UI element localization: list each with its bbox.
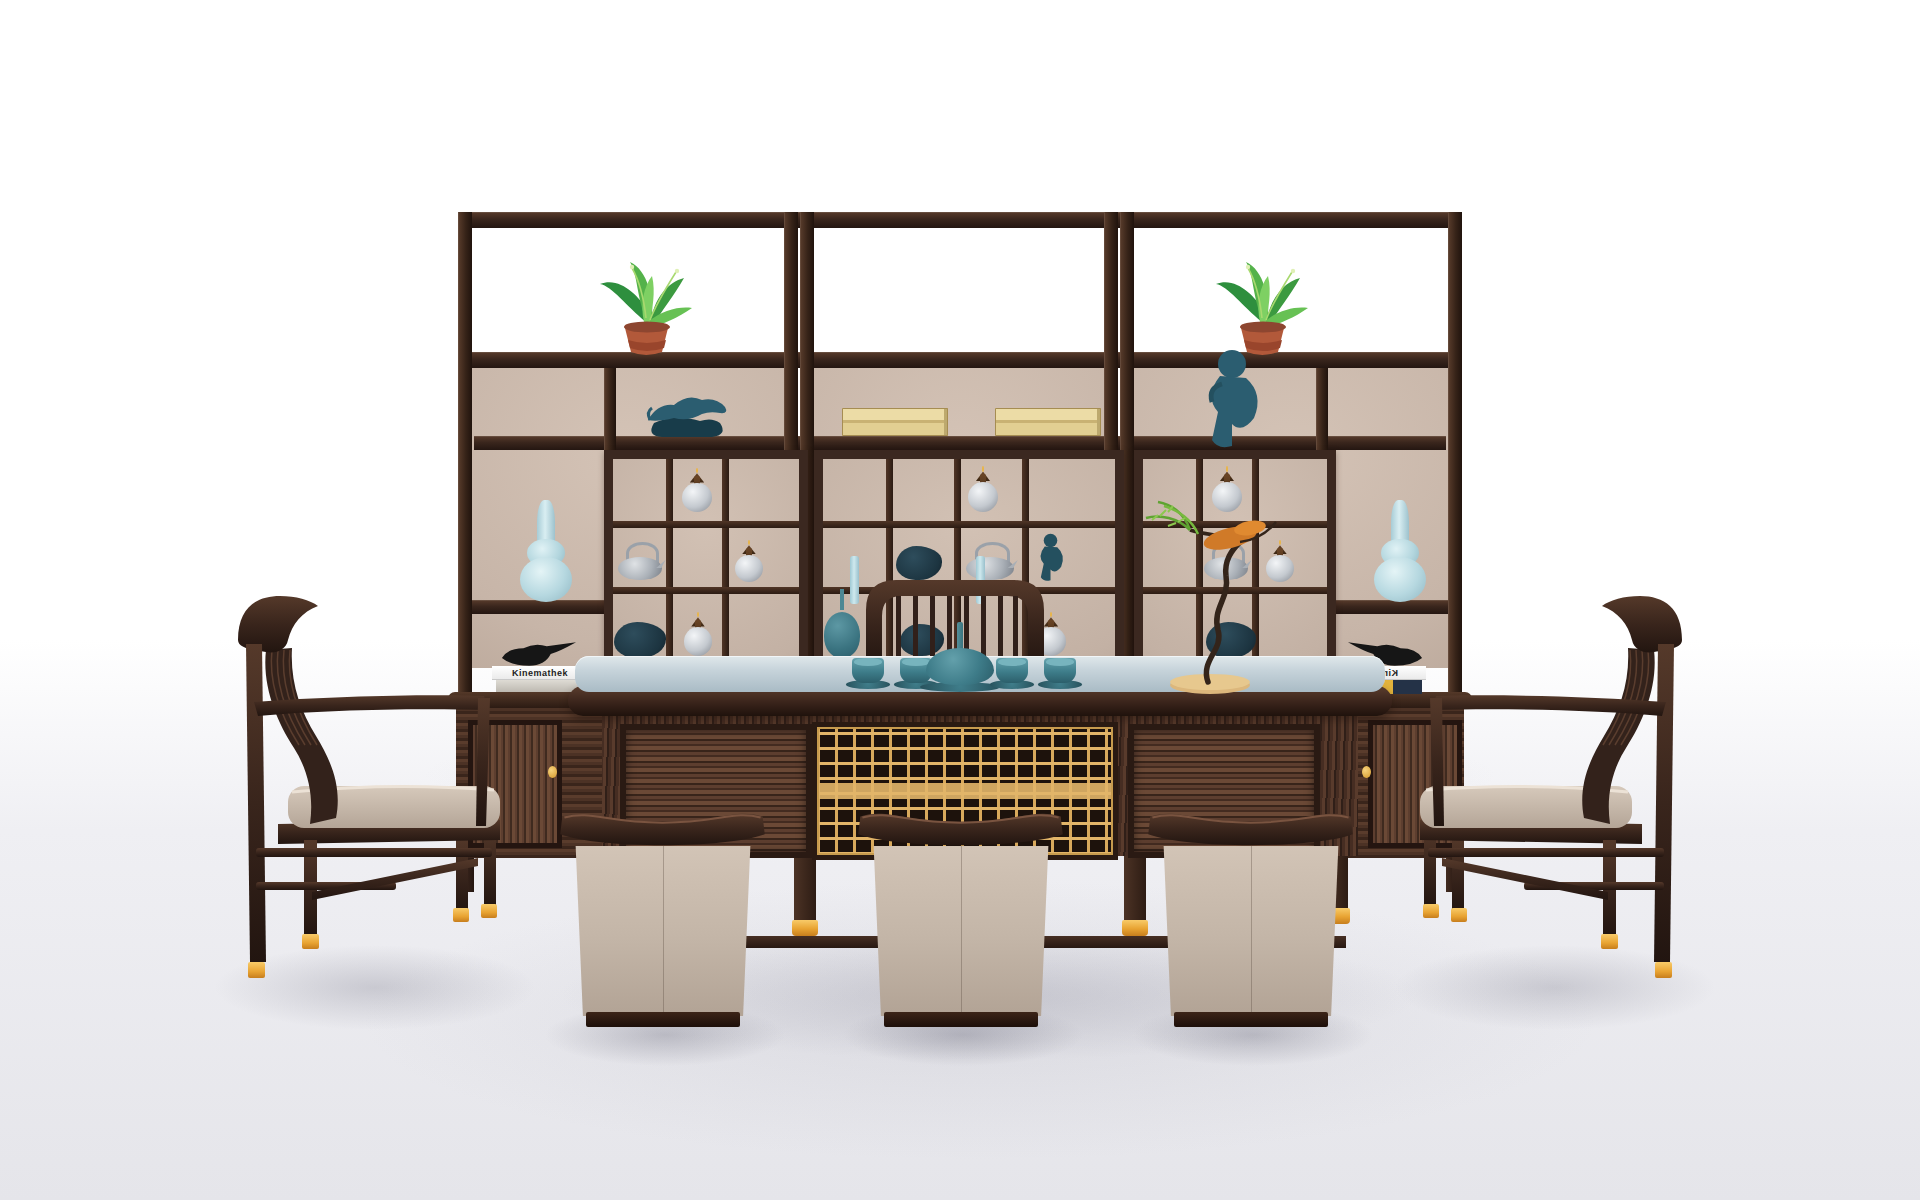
stool-top	[853, 806, 1068, 854]
table-leg	[794, 850, 816, 924]
silver-jar	[735, 542, 763, 582]
shelf-rail	[474, 436, 1446, 450]
gold-foot-cap	[1122, 920, 1148, 936]
stool-body	[870, 846, 1052, 1016]
silver-jar	[682, 470, 712, 512]
teacup	[852, 658, 884, 683]
stool-body	[572, 846, 754, 1016]
potted-plant-icon	[1208, 248, 1316, 356]
armchair-right	[1416, 590, 1688, 992]
shelf-top-rail	[458, 212, 1462, 228]
bird-figurine-icon	[500, 640, 578, 670]
celadon-vase	[520, 500, 572, 602]
door-knob	[1362, 766, 1371, 778]
door-knob	[548, 766, 557, 778]
teacup	[1044, 658, 1076, 683]
teapot	[926, 648, 994, 685]
stool-base	[884, 1012, 1038, 1027]
gold-books	[995, 408, 1101, 436]
stool-base	[586, 1012, 740, 1027]
teacup	[996, 658, 1028, 683]
stool-top	[555, 806, 770, 854]
potted-plant-icon	[592, 248, 700, 356]
silver-jar	[684, 614, 712, 656]
gold-foot-cap	[792, 920, 818, 936]
stool-body	[1160, 846, 1342, 1016]
figurine-child-icon	[1202, 348, 1264, 452]
gold-books	[842, 408, 948, 436]
armchair-left	[232, 590, 504, 992]
teal-jar	[824, 608, 860, 658]
silver-teapot	[618, 544, 662, 582]
feline-figurine-icon	[644, 392, 732, 438]
celadon-vase	[1374, 500, 1426, 602]
render-scene: Kinemathek Kinemathek	[0, 0, 1920, 1200]
stool-top	[1143, 806, 1358, 854]
silver-jar	[968, 468, 998, 512]
bonsai-penjing-icon	[1138, 492, 1308, 702]
table-leg	[1124, 850, 1146, 924]
stool-base	[1174, 1012, 1328, 1027]
stone-sculpture	[614, 622, 666, 658]
